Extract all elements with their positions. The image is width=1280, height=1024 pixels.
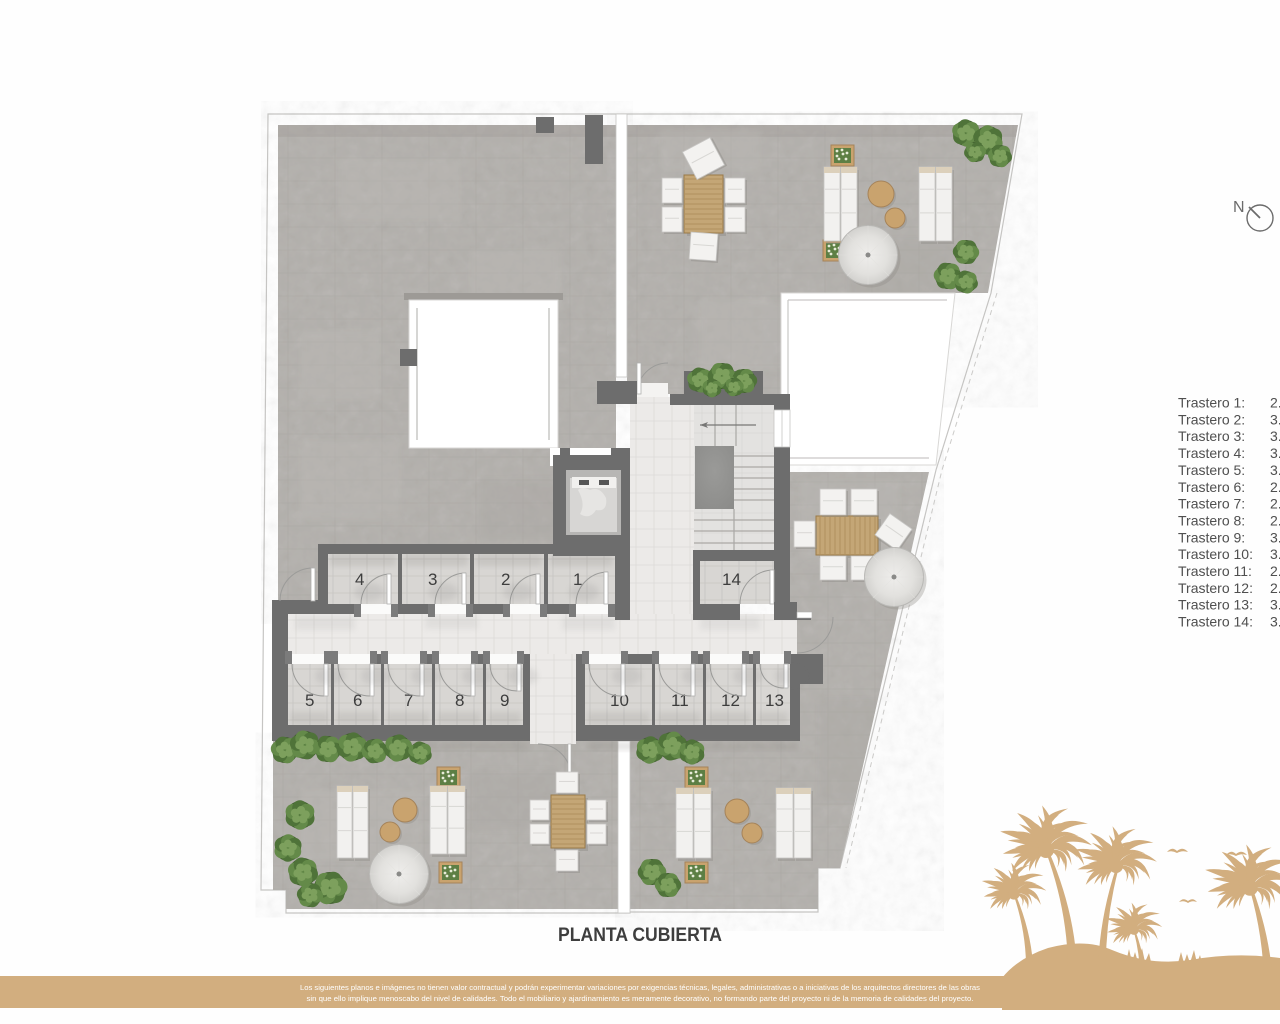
- svg-text:2.8: 2.8: [1270, 513, 1280, 529]
- svg-text:Trastero 1:: Trastero 1:: [1178, 395, 1245, 411]
- svg-text:3.2: 3.2: [1270, 462, 1280, 478]
- svg-text:3.1: 3.1: [1270, 546, 1280, 562]
- svg-text:Trastero 5:: Trastero 5:: [1178, 462, 1245, 478]
- svg-text:Trastero 14:: Trastero 14:: [1178, 614, 1253, 630]
- svg-text:2.9: 2.9: [1270, 580, 1280, 596]
- svg-text:13: 13: [765, 691, 784, 710]
- svg-text:10: 10: [610, 691, 629, 710]
- svg-text:Trastero 13:: Trastero 13:: [1178, 597, 1253, 613]
- svg-text:3.1: 3.1: [1270, 411, 1280, 427]
- svg-text:Trastero 10:: Trastero 10:: [1178, 546, 1253, 562]
- svg-text:N: N: [1233, 199, 1245, 216]
- svg-text:2.8: 2.8: [1270, 563, 1280, 579]
- svg-text:Trastero 9:: Trastero 9:: [1178, 529, 1245, 545]
- svg-text:Trastero 7:: Trastero 7:: [1178, 496, 1245, 512]
- svg-text:sin que ello implique menoscab: sin que ello implique menoscabo del nive…: [307, 994, 974, 1003]
- svg-text:Trastero 3:: Trastero 3:: [1178, 428, 1245, 444]
- svg-text:14: 14: [722, 570, 741, 589]
- svg-text:Trastero 11:: Trastero 11:: [1178, 563, 1252, 579]
- svg-text:2.7: 2.7: [1270, 395, 1280, 411]
- svg-text:3.2: 3.2: [1270, 614, 1280, 630]
- svg-text:3.0: 3.0: [1270, 445, 1280, 461]
- svg-text:Trastero 6:: Trastero 6:: [1178, 479, 1245, 495]
- svg-text:3.1: 3.1: [1270, 428, 1280, 444]
- svg-text:2.9: 2.9: [1270, 479, 1280, 495]
- svg-text:PLANTA CUBIERTA: PLANTA CUBIERTA: [558, 925, 722, 946]
- svg-text:2.9: 2.9: [1270, 496, 1280, 512]
- svg-text:Los siguientes planos e imágen: Los siguientes planos e imágenes no tien…: [300, 983, 980, 992]
- svg-text:Trastero 8:: Trastero 8:: [1178, 513, 1245, 529]
- svg-text:Trastero 2:: Trastero 2:: [1178, 411, 1245, 427]
- svg-text:3.0: 3.0: [1270, 597, 1280, 613]
- svg-text:Trastero 4:: Trastero 4:: [1178, 445, 1245, 461]
- svg-text:3.0: 3.0: [1270, 529, 1280, 545]
- svg-text:Trastero 12:: Trastero 12:: [1178, 580, 1253, 596]
- svg-text:9: 9: [500, 691, 509, 710]
